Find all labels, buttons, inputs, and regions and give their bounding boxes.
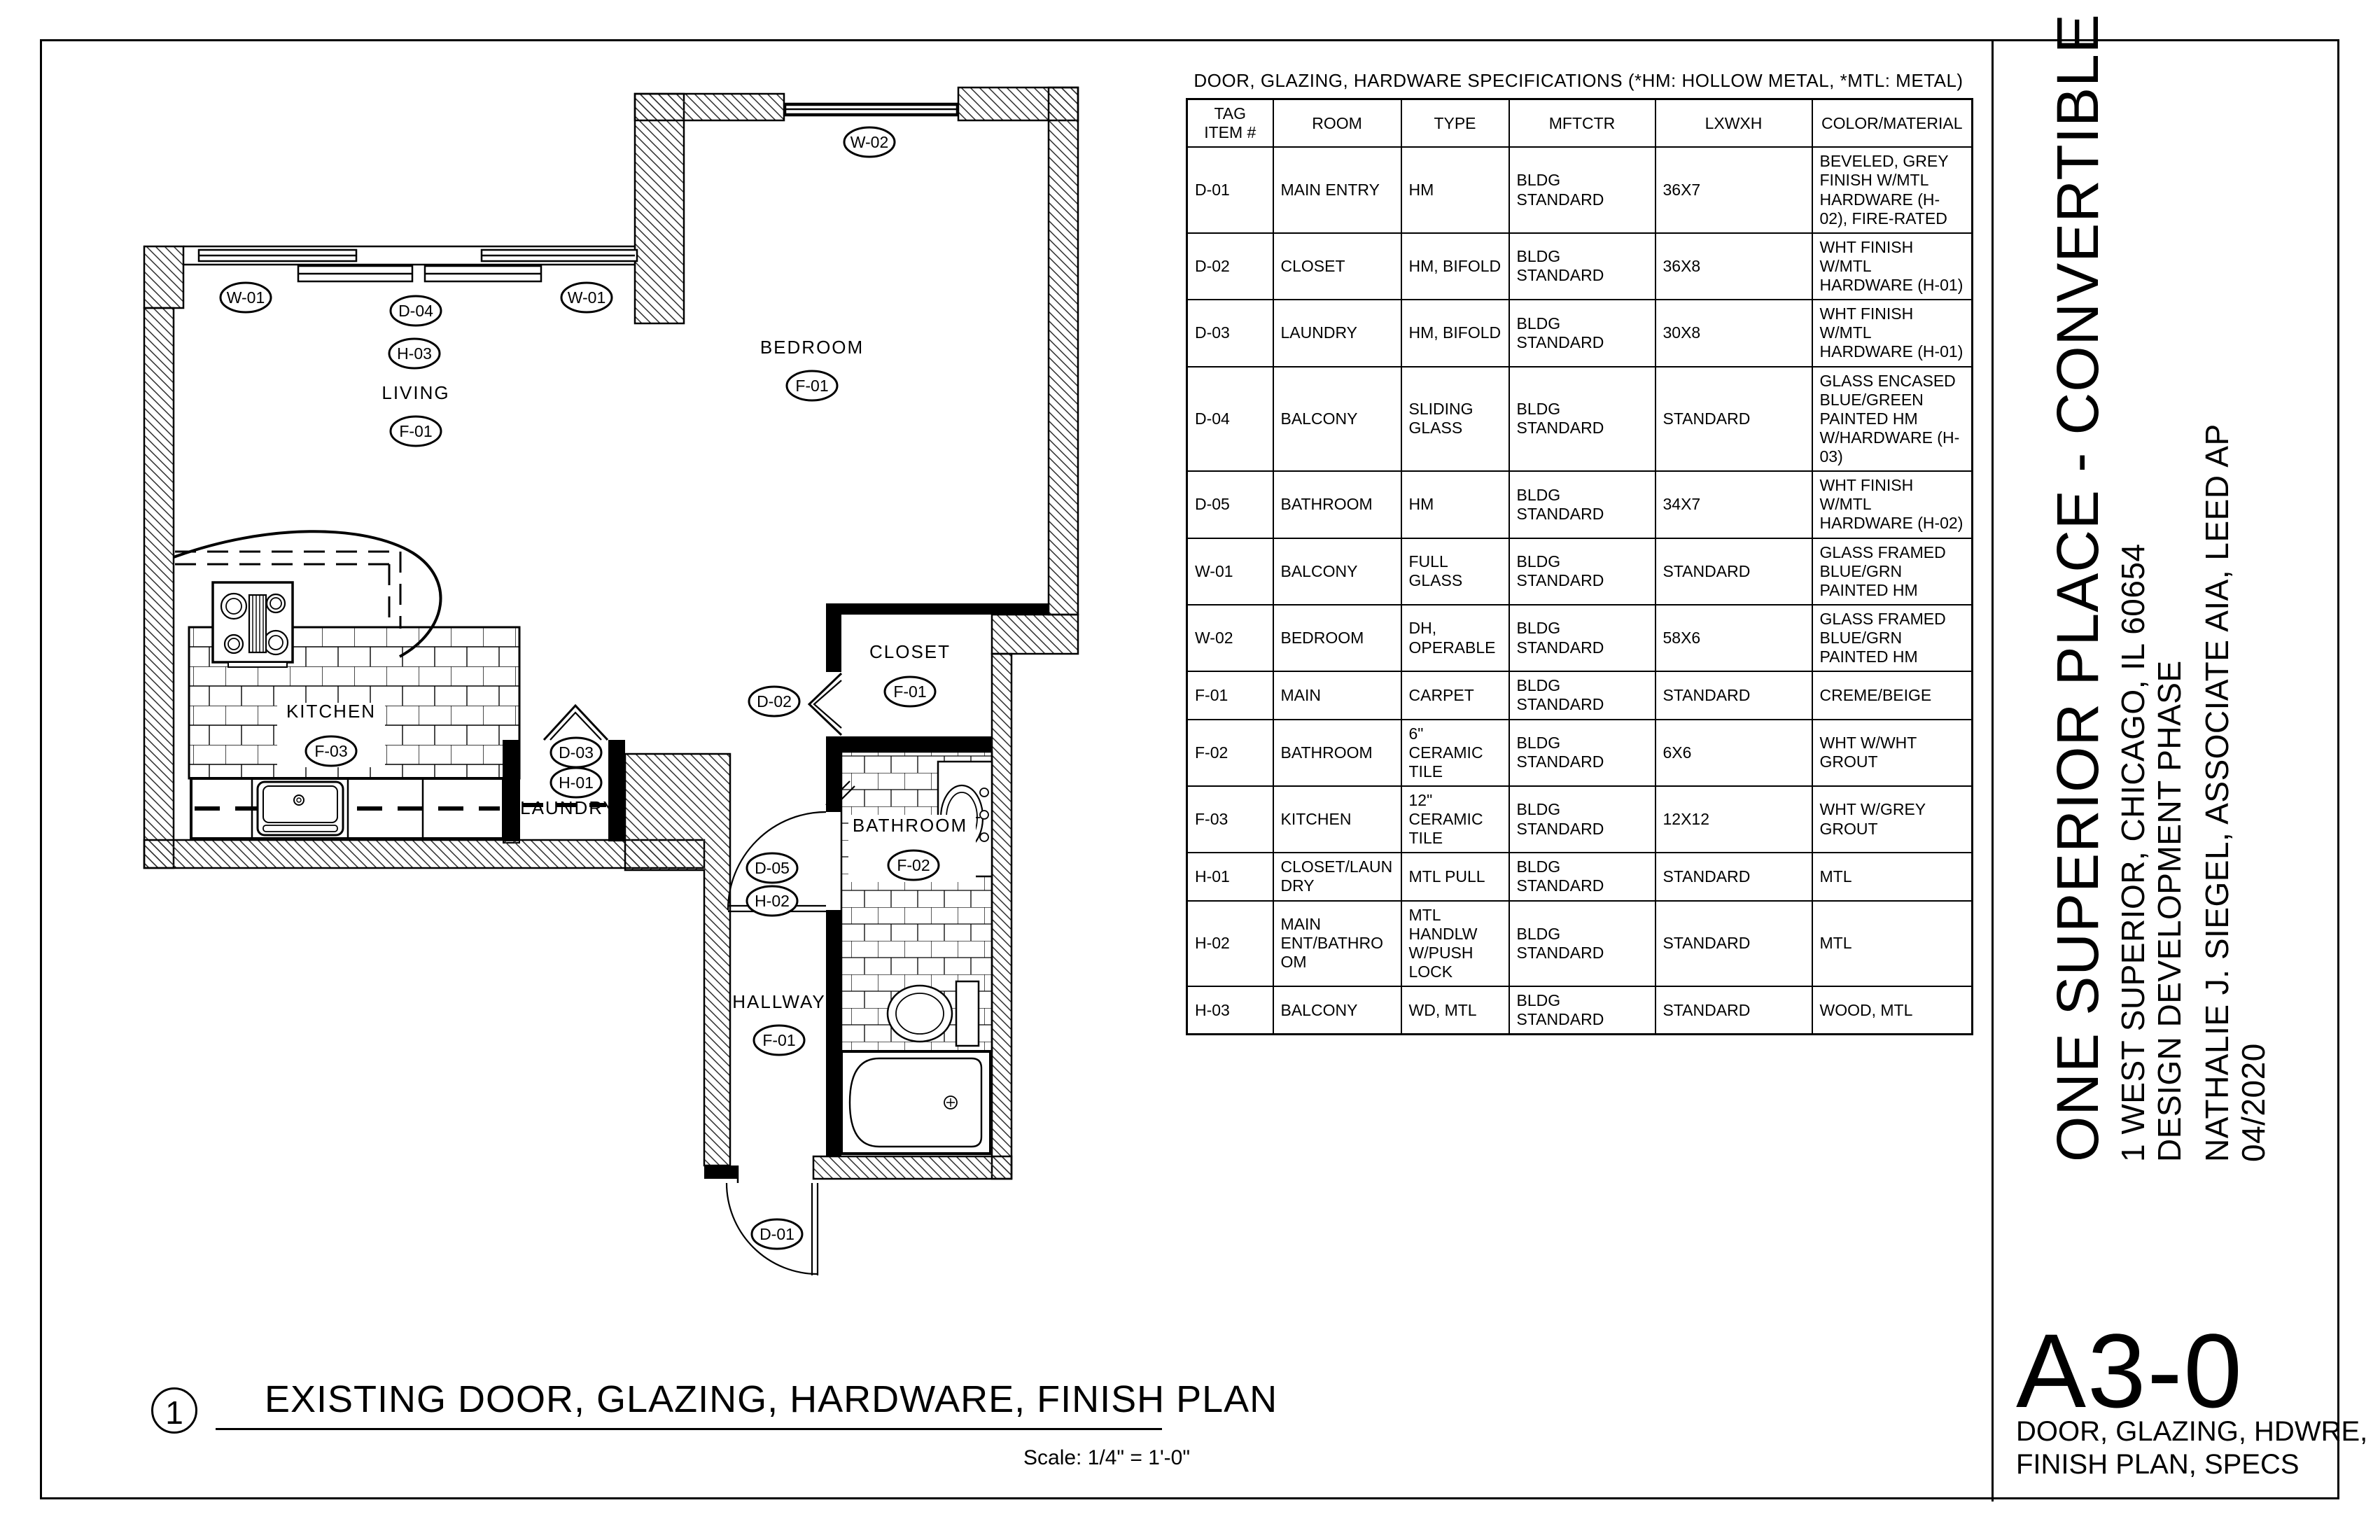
drawing-title: EXISTING DOOR, GLAZING, HARDWARE, FINISH…: [265, 1378, 1277, 1421]
spec-cell: H-02: [1187, 901, 1273, 987]
spec-cell: BLDG STANDARD: [1509, 233, 1655, 300]
spec-cell: BLDG STANDARD: [1509, 853, 1655, 900]
spec-cell: D-04: [1187, 367, 1273, 472]
tag-label-f-02: F-02: [897, 856, 930, 874]
spec-cell: 34X7: [1655, 471, 1812, 538]
spec-cell: D-03: [1187, 300, 1273, 366]
tag-label-d-03: D-03: [559, 743, 594, 762]
spec-cell: SLIDING GLASS: [1401, 367, 1509, 472]
spec-cell: HM: [1401, 147, 1509, 233]
spec-column-header: COLOR/MATERIAL: [1812, 99, 1973, 148]
sheet-title-line1: DOOR, GLAZING, HDWRE,: [2016, 1415, 2367, 1448]
spec-cell: BLDG STANDARD: [1509, 538, 1655, 605]
tag-label-f-01: F-01: [795, 377, 828, 395]
room-label-closet: CLOSET: [869, 641, 951, 662]
room-label-hallway: HALLWAY: [732, 991, 825, 1012]
table-row: H-02MAIN ENT/BATHROOMMTL HANDLW W/PUSH L…: [1187, 901, 1973, 987]
spec-cell: BLDG STANDARD: [1509, 671, 1655, 719]
spec-cell: STANDARD: [1655, 853, 1812, 900]
table-row: F-02BATHROOM6" CERAMIC TILEBLDG STANDARD…: [1187, 720, 1973, 786]
spec-cell: F-01: [1187, 671, 1273, 719]
spec-cell: STANDARD: [1655, 671, 1812, 719]
tag-label-f-01: F-01: [399, 422, 432, 440]
stove: [213, 582, 293, 667]
toilet: [888, 981, 979, 1046]
spec-table: TAG ITEM #ROOMTYPEMFTCTRLXWXHCOLOR/MATER…: [1186, 98, 1973, 1035]
drawing-scale-note: Scale: 1/4" = 1'-0": [812, 1446, 1190, 1470]
spec-cell: STANDARD: [1655, 901, 1812, 987]
spec-table-title: DOOR, GLAZING, HARDWARE SPECIFICATIONS (…: [1186, 70, 1971, 92]
project-name: ONE SUPERIOR PLACE - CONVERTIBLE: [2044, 13, 2112, 1162]
tag-label-d-01: D-01: [759, 1225, 794, 1243]
spec-cell: W-02: [1187, 605, 1273, 671]
table-row: D-03LAUNDRYHM, BIFOLDBLDG STANDARD30X8WH…: [1187, 300, 1973, 366]
spec-cell: D-05: [1187, 471, 1273, 538]
table-row: F-03KITCHEN12" CERAMIC TILEBLDG STANDARD…: [1187, 786, 1973, 853]
spec-cell: F-02: [1187, 720, 1273, 786]
tag-label-h-02: H-02: [755, 892, 790, 910]
spec-cell: MTL PULL: [1401, 853, 1509, 900]
table-row: F-01MAINCARPETBLDG STANDARDSTANDARDCREME…: [1187, 671, 1973, 719]
spec-cell: D-01: [1187, 147, 1273, 233]
spec-cell: LAUNDRY: [1273, 300, 1401, 366]
spec-cell: HM, BIFOLD: [1401, 233, 1509, 300]
spec-cell: FULL GLASS: [1401, 538, 1509, 605]
spec-table-body: D-01MAIN ENTRYHMBLDG STANDARD36X7BEVELED…: [1187, 147, 1973, 1035]
spec-cell: GLASS ENCASED BLUE/GREEN PAINTED HM W/HA…: [1812, 367, 1973, 472]
spec-column-header: LXWXH: [1655, 99, 1812, 148]
kitchen-counter: [191, 778, 503, 839]
tag-label-w-01: W-01: [568, 288, 606, 307]
spec-cell: WD, MTL: [1401, 986, 1509, 1035]
spec-cell: MAIN ENTRY: [1273, 147, 1401, 233]
table-row: D-04BALCONYSLIDING GLASSBLDG STANDARDSTA…: [1187, 367, 1973, 472]
spec-cell: MTL: [1812, 853, 1973, 900]
spec-cell: 6X6: [1655, 720, 1812, 786]
closet-bifold-door: [809, 673, 841, 735]
spec-cell: 6" CERAMIC TILE: [1401, 720, 1509, 786]
spec-cell: BLDG STANDARD: [1509, 147, 1655, 233]
project-phase: DESIGN DEVELOPMENT PHASE: [2150, 660, 2188, 1162]
spec-cell: GLASS FRAMED BLUE/GRN PAINTED HM: [1812, 538, 1973, 605]
issue-date: 04/2020: [2234, 1043, 2272, 1162]
tag-label-w-02: W-02: [850, 133, 889, 151]
spec-cell: BEVELED, GREY FINISH W/MTL HARDWARE (H-0…: [1812, 147, 1973, 233]
spec-cell: BLDG STANDARD: [1509, 986, 1655, 1035]
sheet-title-line2: FINISH PLAN, SPECS: [2016, 1448, 2367, 1481]
spec-column-header: TAG ITEM #: [1187, 99, 1273, 148]
spec-cell: WHT FINISH W/MTL HARDWARE (H-01): [1812, 233, 1973, 300]
spec-cell: W-01: [1187, 538, 1273, 605]
spec-cell: STANDARD: [1655, 986, 1812, 1035]
spec-cell: DH, OPERABLE: [1401, 605, 1509, 671]
title-block-divider: [1991, 39, 1994, 1501]
tag-label-w-01: W-01: [227, 288, 265, 307]
spec-cell: WHT W/WHT GROUT: [1812, 720, 1973, 786]
table-row: W-01BALCONYFULL GLASSBLDG STANDARDSTANDA…: [1187, 538, 1973, 605]
spec-cell: BALCONY: [1273, 986, 1401, 1035]
spec-column-header: TYPE: [1401, 99, 1509, 148]
kitchen-sink: [258, 782, 343, 835]
sheet-title: DOOR, GLAZING, HDWRE, FINISH PLAN, SPECS: [2016, 1415, 2367, 1481]
tag-label-h-03: H-03: [397, 344, 432, 363]
floor-plan: LIVINGBEDROOMKITCHENCLOSETBATHROOMHALLWA…: [98, 56, 1134, 1316]
room-label-living: LIVING: [381, 382, 449, 403]
drawing-title-underline: [216, 1428, 1162, 1430]
spec-cell: WOOD, MTL: [1812, 986, 1973, 1035]
spec-cell: 36X7: [1655, 147, 1812, 233]
spec-cell: 30X8: [1655, 300, 1812, 366]
spec-cell: 12" CERAMIC TILE: [1401, 786, 1509, 853]
drawing-number-bubble: 1: [151, 1387, 197, 1434]
spec-cell: H-01: [1187, 853, 1273, 900]
spec-cell: BLDG STANDARD: [1509, 605, 1655, 671]
spec-cell: 12X12: [1655, 786, 1812, 853]
spec-cell: MAIN: [1273, 671, 1401, 719]
spec-cell: WHT FINISH W/MTL HARDWARE (H-02): [1812, 471, 1973, 538]
bathtub: [841, 1051, 990, 1154]
spec-cell: BATHROOM: [1273, 720, 1401, 786]
spec-cell: HM, BIFOLD: [1401, 300, 1509, 366]
spec-cell: CARPET: [1401, 671, 1509, 719]
room-label-kitchen: KITCHEN: [286, 701, 376, 722]
balcony-window-wall: [183, 246, 637, 281]
spec-cell: BLDG STANDARD: [1509, 300, 1655, 366]
room-label-bathroom: BATHROOM: [853, 815, 967, 836]
spec-table-header-row: TAG ITEM #ROOMTYPEMFTCTRLXWXHCOLOR/MATER…: [1187, 99, 1973, 148]
sliding-door-d04: [298, 266, 541, 281]
bedroom-window-w02: [784, 104, 958, 115]
spec-cell: WHT W/GREY GROUT: [1812, 786, 1973, 853]
table-row: H-03BALCONYWD, MTLBLDG STANDARDSTANDARDW…: [1187, 986, 1973, 1035]
spec-cell: BLDG STANDARD: [1509, 367, 1655, 472]
spec-cell: BLDG STANDARD: [1509, 471, 1655, 538]
spec-cell: BLDG STANDARD: [1509, 901, 1655, 987]
table-row: H-01CLOSET/LAUNDRYMTL PULLBLDG STANDARDS…: [1187, 853, 1973, 900]
spec-cell: H-03: [1187, 986, 1273, 1035]
spec-cell: BALCONY: [1273, 538, 1401, 605]
spec-cell: BLDG STANDARD: [1509, 720, 1655, 786]
tag-label-d-05: D-05: [755, 859, 790, 877]
spec-cell: MTL HANDLW W/PUSH LOCK: [1401, 901, 1509, 987]
spec-cell: GLASS FRAMED BLUE/GRN PAINTED HM: [1812, 605, 1973, 671]
spec-cell: D-02: [1187, 233, 1273, 300]
table-row: W-02BEDROOMDH, OPERABLEBLDG STANDARD58X6…: [1187, 605, 1973, 671]
spec-cell: MTL: [1812, 901, 1973, 987]
spec-column-header: ROOM: [1273, 99, 1401, 148]
spec-cell: BEDROOM: [1273, 605, 1401, 671]
spec-cell: MAIN ENT/BATHROOM: [1273, 901, 1401, 987]
spec-cell: HM: [1401, 471, 1509, 538]
spec-cell: F-03: [1187, 786, 1273, 853]
spec-cell: WHT FINISH W/MTL HARDWARE (H-01): [1812, 300, 1973, 366]
tag-label-d-04: D-04: [398, 302, 433, 320]
spec-cell: BATHROOM: [1273, 471, 1401, 538]
tag-label-f-03: F-03: [314, 742, 347, 760]
spec-cell: 58X6: [1655, 605, 1812, 671]
spec-cell: CLOSET/LAUNDRY: [1273, 853, 1401, 900]
table-row: D-02CLOSETHM, BIFOLDBLDG STANDARD36X8WHT…: [1187, 233, 1973, 300]
spec-cell: BLDG STANDARD: [1509, 786, 1655, 853]
table-row: D-05BATHROOMHMBLDG STANDARD34X7WHT FINIS…: [1187, 471, 1973, 538]
spec-cell: CLOSET: [1273, 233, 1401, 300]
drawing-sheet: LIVINGBEDROOMKITCHENCLOSETBATHROOMHALLWA…: [0, 0, 2380, 1540]
sheet-number: A3-0: [2016, 1310, 2243, 1431]
room-label-laundry: LAUNDRY: [520, 797, 617, 818]
tag-label-f-01: F-01: [893, 682, 926, 701]
tag-label-f-01: F-01: [762, 1031, 795, 1049]
spec-cell: 36X8: [1655, 233, 1812, 300]
spec-cell: STANDARD: [1655, 538, 1812, 605]
architect-name: NATHALIE J. SIEGEL, ASSOCIATE AIA, LEED …: [2198, 423, 2236, 1162]
spec-cell: CREME/BEIGE: [1812, 671, 1973, 719]
table-row: D-01MAIN ENTRYHMBLDG STANDARD36X7BEVELED…: [1187, 147, 1973, 233]
project-address: 1 WEST SUPERIOR, CHICAGO, IL 60654: [2114, 543, 2152, 1162]
spec-cell: STANDARD: [1655, 367, 1812, 472]
tag-label-h-01: H-01: [559, 773, 594, 792]
spec-cell: KITCHEN: [1273, 786, 1401, 853]
spec-cell: BALCONY: [1273, 367, 1401, 472]
room-label-bedroom: BEDROOM: [760, 337, 864, 358]
spec-column-header: MFTCTR: [1509, 99, 1655, 148]
tag-label-d-02: D-02: [757, 692, 792, 710]
